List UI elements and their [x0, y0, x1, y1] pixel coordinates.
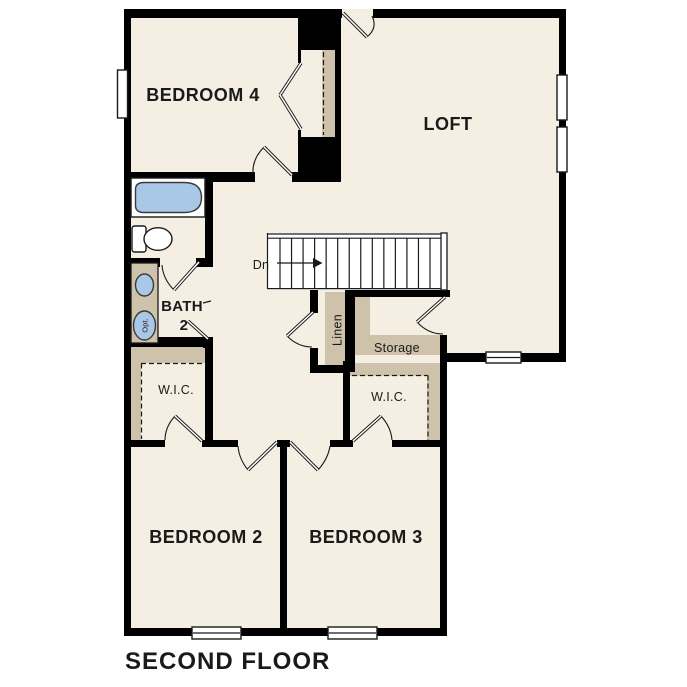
wic-left-shelf-side [131, 347, 141, 440]
wic-right-label: W.I.C. [371, 390, 407, 404]
bathtub [136, 183, 202, 213]
linen-label: Linen [331, 314, 345, 346]
bedroom4-label: BEDROOM 4 [146, 85, 260, 105]
floorplan-canvas: Opt. [0, 0, 687, 687]
loft-label: LOFT [424, 114, 473, 134]
bath-label-line2: 2 [180, 317, 189, 334]
wic-left-label: W.I.C. [158, 383, 194, 397]
staircase [267, 233, 447, 290]
plan-title: SECOND FLOOR [125, 648, 330, 675]
optional-fixture-label: Opt. [141, 318, 150, 332]
loft-window-upper [557, 75, 567, 120]
sink [136, 274, 154, 296]
toilet-bowl [144, 228, 172, 251]
stairs-dn-label: Dn [253, 258, 270, 272]
bedroom3-label: BEDROOM 3 [309, 527, 423, 547]
bedroom4-window [118, 70, 128, 118]
bedroom4-closet [296, 50, 335, 137]
bedroom3-window [328, 627, 377, 639]
loft-window-lower [557, 127, 567, 172]
bedroom2-window [192, 627, 241, 639]
wic-left-shelf-top [131, 347, 205, 363]
floorplan-drawing: Opt. [0, 0, 687, 687]
loft-bottom-window [486, 352, 521, 363]
stair-rail [441, 233, 447, 290]
bedroom2-label: BEDROOM 2 [149, 527, 263, 547]
wic-right-shelf-side [427, 363, 440, 440]
wic-right-shelf-top [350, 363, 440, 376]
storage-label: Storage [374, 341, 420, 355]
bath-label-line1: BATH [161, 298, 203, 315]
